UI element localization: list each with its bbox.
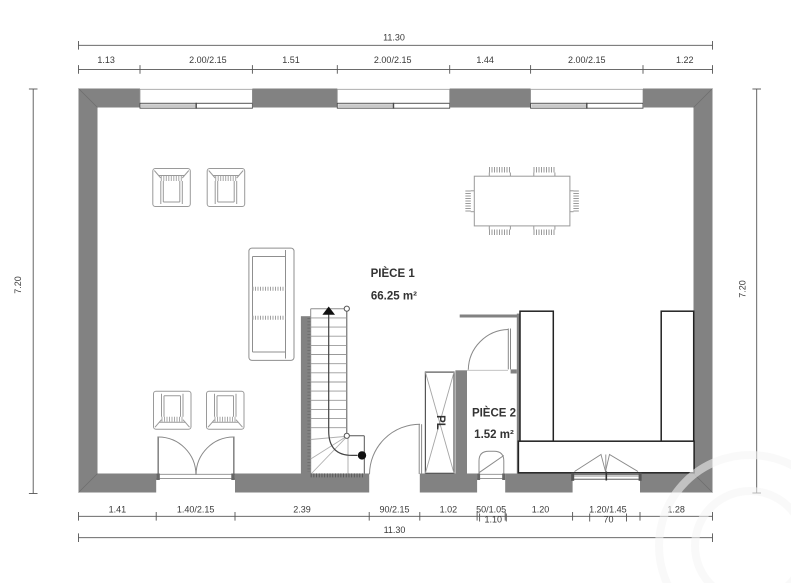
svg-text:50/1.05: 50/1.05: [476, 505, 506, 515]
svg-text:11.30: 11.30: [384, 525, 406, 535]
svg-text:1.22: 1.22: [676, 55, 694, 65]
svg-text:1.02: 1.02: [440, 505, 458, 515]
svg-text:1.51: 1.51: [282, 55, 300, 65]
svg-text:1.13: 1.13: [97, 55, 115, 65]
svg-text:2.39: 2.39: [293, 505, 311, 515]
svg-text:1.20: 1.20: [532, 505, 550, 515]
svg-text:90/2.15: 90/2.15: [379, 505, 409, 515]
svg-text:2.00/2.15: 2.00/2.15: [189, 55, 227, 65]
svg-text:PL: PL: [434, 415, 446, 430]
svg-text:7.20: 7.20: [738, 280, 748, 298]
svg-text:11.30: 11.30: [383, 33, 405, 43]
svg-text:1.10: 1.10: [485, 515, 503, 525]
svg-text:2.00/2.15: 2.00/2.15: [568, 55, 606, 65]
svg-text:PIÈCE 1: PIÈCE 1: [371, 267, 416, 280]
svg-text:1.40/2.15: 1.40/2.15: [177, 505, 215, 515]
svg-text:2.00/2.15: 2.00/2.15: [374, 55, 412, 65]
svg-text:7.20: 7.20: [13, 276, 23, 294]
svg-text:1.41: 1.41: [109, 505, 127, 515]
svg-text:PIÈCE 2: PIÈCE 2: [472, 407, 516, 420]
svg-text:1.52 m²: 1.52 m²: [474, 429, 514, 441]
svg-text:70: 70: [603, 515, 613, 525]
svg-text:1.20/1.45: 1.20/1.45: [589, 505, 627, 515]
svg-text:66.25 m²: 66.25 m²: [371, 291, 417, 303]
svg-text:1.44: 1.44: [476, 55, 494, 65]
